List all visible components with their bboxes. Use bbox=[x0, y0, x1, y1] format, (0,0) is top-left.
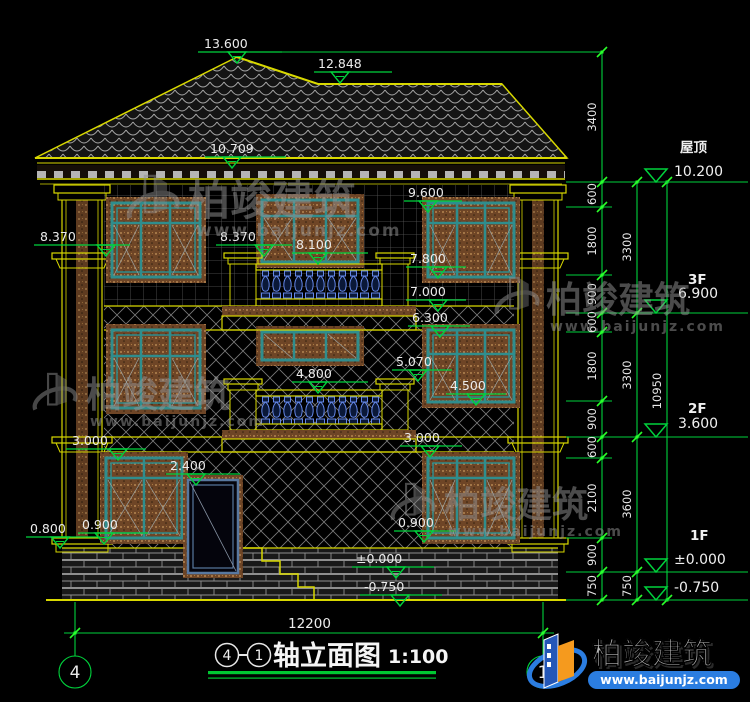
plinth-brick bbox=[62, 548, 558, 600]
window-2f-right bbox=[422, 324, 520, 408]
title-block: 4 1 轴立面图 1:100 bbox=[208, 640, 448, 679]
marker-value: ±0.000 bbox=[356, 551, 402, 566]
level-callout: 1F ±0.000 bbox=[640, 528, 748, 572]
marker-value: 4.800 bbox=[296, 366, 332, 381]
level-callouts: 屋顶 10.200 3F 6.900 2F 3.600 1F ±0.000 -0… bbox=[640, 140, 748, 600]
roof bbox=[35, 57, 567, 158]
dim-label: 3600 bbox=[620, 489, 634, 518]
marker-value: 0.800 bbox=[30, 521, 66, 536]
marker-value: 2.400 bbox=[170, 458, 206, 473]
watermark-brand: 柏竣建筑 bbox=[546, 280, 690, 321]
drawing-title: 轴立面图 bbox=[273, 640, 381, 672]
logo-building-orange bbox=[558, 640, 574, 682]
title-axis-start: 4 bbox=[223, 648, 232, 664]
axis-bubble-left-label: 4 bbox=[70, 663, 81, 683]
dim-label: 900 bbox=[585, 544, 599, 566]
watermark-brand: 柏竣建筑 bbox=[188, 176, 356, 225]
brand-logo: 柏竣建筑 柏竣建筑 www.baijunjz.com bbox=[524, 634, 740, 694]
marker-value: 6.300 bbox=[412, 310, 448, 325]
watermark-url: www.baijunjz.com bbox=[448, 524, 623, 540]
dim-label: 3300 bbox=[620, 360, 634, 389]
marker-value: 13.600 bbox=[204, 36, 248, 51]
marker-value: 3.000 bbox=[72, 433, 108, 448]
marker-value: 0.900 bbox=[398, 515, 434, 530]
window-2f-center bbox=[256, 326, 364, 366]
dim-label: 3400 bbox=[585, 102, 599, 131]
marker-value: 7.800 bbox=[410, 251, 446, 266]
logo-url: www.baijunjz.com bbox=[600, 672, 728, 687]
drawing-scale: 1:100 bbox=[388, 646, 448, 668]
marker-value: 0.900 bbox=[82, 517, 118, 532]
marker-value: 5.070 bbox=[396, 354, 432, 369]
marker-value: 4.500 bbox=[450, 378, 486, 393]
dim-label: 900 bbox=[585, 408, 599, 430]
watermark-url: www.baijunjz.com bbox=[550, 319, 725, 335]
level-elevation: 10.200 bbox=[674, 164, 723, 180]
level-name: 1F bbox=[690, 528, 709, 544]
elevation-marker: 12.848 bbox=[314, 56, 392, 83]
elevation-marker: 13.600 bbox=[198, 36, 282, 63]
watermark-brand: 柏竣建筑 bbox=[86, 375, 230, 416]
watermark-brand: 柏竣建筑 bbox=[444, 485, 588, 526]
window-3f-right bbox=[422, 197, 520, 283]
marker-value: 12.848 bbox=[318, 56, 362, 71]
drawing-canvas: 13.600 12.848 10.709 9.600 8.370 8.370 8… bbox=[0, 0, 750, 702]
dim-label: 750 bbox=[620, 575, 634, 597]
title-underline-thin bbox=[208, 678, 436, 679]
logo-building-blue bbox=[544, 634, 558, 688]
cad-elevation-drawing: 13.600 12.848 10.709 9.600 8.370 8.370 8… bbox=[0, 0, 750, 702]
watermark-url: www.baijunjz.com bbox=[196, 221, 402, 241]
level-name: 屋顶 bbox=[680, 140, 708, 156]
entry-door bbox=[183, 475, 243, 578]
level-name: 2F bbox=[688, 401, 707, 417]
dim-label: 10950 bbox=[650, 373, 664, 410]
marker-value: 3.000 bbox=[404, 430, 440, 445]
dim-label: 1800 bbox=[585, 226, 599, 255]
marker-value: 8.370 bbox=[40, 229, 76, 244]
roof-tiles bbox=[35, 57, 567, 158]
dim-label: 3300 bbox=[620, 232, 634, 261]
title-axis-end: 1 bbox=[255, 648, 264, 664]
marker-value: -0.750 bbox=[364, 579, 404, 594]
level-callout: 屋顶 10.200 bbox=[640, 140, 748, 182]
logo-brand: 柏竣建筑 bbox=[592, 637, 712, 672]
level-elevation: -0.750 bbox=[674, 580, 719, 596]
marker-value: 7.000 bbox=[410, 284, 446, 299]
marker-value: 9.600 bbox=[408, 185, 444, 200]
dim-label: 600 bbox=[585, 436, 599, 458]
dim-label: 600 bbox=[585, 183, 599, 205]
dim-label: 1800 bbox=[585, 351, 599, 380]
level-elevation: ±0.000 bbox=[674, 552, 726, 568]
dim-label: 750 bbox=[585, 575, 599, 597]
level-callout: -0.750 bbox=[640, 580, 748, 600]
watermark-url: www.baijunjz.com bbox=[90, 414, 265, 430]
level-elevation: 3.600 bbox=[678, 416, 718, 432]
overall-width-dim: 12200 bbox=[288, 616, 331, 632]
marker-value: 10.709 bbox=[210, 141, 254, 156]
title-underline-thick bbox=[208, 671, 436, 674]
